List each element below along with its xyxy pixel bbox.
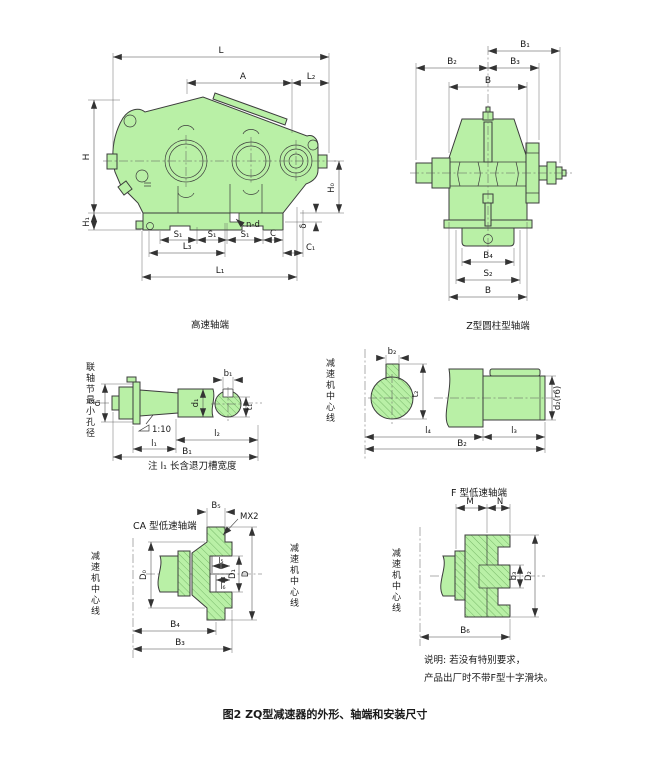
dim-l3-label: l₃ xyxy=(511,426,517,436)
dim-D2-label: D₂ xyxy=(524,571,534,581)
dim-l4-label: l₄ xyxy=(425,426,431,436)
z-key xyxy=(490,369,540,376)
dim-l5-label: l₅ xyxy=(218,556,223,565)
f-collar xyxy=(455,551,465,600)
high-speed-shaft-view: 高速轴端 1:10 dₗ d₁ b₁ t₁ l₂ l₁ B₁ 注 l₁ 长含退刀… xyxy=(93,319,262,472)
dim-b2-label: b₂ xyxy=(388,347,397,357)
z-shaft-view: Z型圆柱型轴端 b₂ t₂ d₂(r6) l₄ l₃ B₂ xyxy=(365,320,563,461)
section-centerlines xyxy=(211,387,245,421)
dim-H-label: H xyxy=(82,154,92,161)
dim-B2-label: B₂ xyxy=(447,57,457,67)
dim-C1-label: C₁ xyxy=(306,243,315,253)
dim-B3ca-label: B₃ xyxy=(175,638,185,648)
ca-shaft-view: CA 型低速轴端 B₅ MX2 D₀ l₅ l₆ D₁ D B₄ B₃ xyxy=(133,501,262,658)
dim-d2-label: d₂(r6) xyxy=(553,386,563,410)
ca-washer xyxy=(178,551,190,596)
thread-label: MX2 xyxy=(240,512,259,522)
dim-d1-label: d₁ xyxy=(191,399,201,408)
dim-dL-label: dₗ xyxy=(93,400,103,407)
dim-b3-label: b₃ xyxy=(509,572,519,581)
taper-section xyxy=(140,390,178,416)
f-coupling-body xyxy=(465,535,510,617)
figure-caption: 图2 ZQ型减速器的外形、轴端和安装尺寸 xyxy=(223,707,428,721)
ca-title: CA 型低速轴端 xyxy=(133,520,197,532)
dim-B6-label: B₆ xyxy=(460,626,470,636)
dim-l2-label: l₂ xyxy=(214,429,220,439)
dim-D0-label: D₀ xyxy=(139,569,149,580)
dim-D-label: D xyxy=(241,570,251,577)
shaft-tip xyxy=(112,396,119,410)
end-view: B₁ B₂ B₃ B B₄ S₂ B xyxy=(410,40,572,301)
dim-D1-label: D₁ xyxy=(228,569,238,579)
dim-C-label: C xyxy=(270,229,276,239)
output-shaft-stub xyxy=(318,155,327,168)
f-shaft-stub xyxy=(441,556,455,596)
side-view: L A L₂ H H₁ H₀ δ S₁ S₁ S₁ C n-d L₃ C₁ L₁ xyxy=(82,46,344,281)
dim-L3-label: L₃ xyxy=(183,242,192,252)
dim-H1-label: H₁ xyxy=(82,217,92,227)
dim-Bbot-label: B xyxy=(485,286,491,296)
dim-L1-label: L₁ xyxy=(216,266,225,276)
dim-B1-label: B₁ xyxy=(520,40,530,50)
dim-B2z-label: B₂ xyxy=(457,439,467,449)
shaft-nut xyxy=(119,387,133,419)
taper-symbol xyxy=(139,415,153,431)
dim-Btop-label: B xyxy=(485,76,491,86)
dim-B4ca-label: B₄ xyxy=(170,620,180,630)
ca-coupling-body xyxy=(192,527,232,620)
dim-l6-label: l₆ xyxy=(220,582,225,591)
dim-S1c-label: S₁ xyxy=(241,230,250,240)
high-speed-title: 高速轴端 xyxy=(191,319,230,331)
drain-plug xyxy=(136,221,143,229)
dim-S1b-label: S₁ xyxy=(208,230,217,240)
z-title: Z型圆柱型轴端 xyxy=(466,320,530,332)
dim-M-label: M xyxy=(466,497,473,507)
dim-S2-label: S₂ xyxy=(483,269,493,279)
dim-N-label: N xyxy=(497,497,503,507)
housing-body xyxy=(113,97,318,213)
dim-delta-label: δ xyxy=(299,223,309,228)
note-line1: 说明: 若没有特别要求， xyxy=(424,654,525,666)
dim-b1-label: b₁ xyxy=(224,369,233,379)
coupling-bore-label: 联轴节最小孔径 xyxy=(84,362,93,439)
dim-nd-label: n-d xyxy=(246,220,260,230)
dim-L2-label: L₂ xyxy=(307,72,316,82)
z-centerline-label: 减速机中心线 xyxy=(324,358,333,424)
dim-S1a-label: S₁ xyxy=(174,230,183,240)
dim-B5-label: B₅ xyxy=(211,501,220,511)
taper-label: 1:10 xyxy=(152,425,171,435)
ca-centerline-label-left: 减速机中心线 xyxy=(89,551,98,617)
f-shaft-view: F 型低速轴端 M N b₃ D₂ B₆ xyxy=(420,487,545,646)
dim-H0-label: H₀ xyxy=(327,183,337,193)
ca-centerline-label-right: 减速机中心线 xyxy=(288,543,297,609)
drawing-page: L A L₂ H H₁ H₀ δ S₁ S₁ S₁ C n-d L₃ C₁ L₁ xyxy=(0,0,650,760)
dim-L-label: L xyxy=(218,46,223,56)
hs-note: 注 l₁ 长含退刀槽宽度 xyxy=(148,460,237,472)
input-shaft-stub xyxy=(107,154,117,169)
dim-B3-label: B₃ xyxy=(510,57,520,67)
dim-B1hs-label: B₁ xyxy=(182,447,192,457)
base-flange xyxy=(143,213,283,230)
dim-t1-label: t₁ xyxy=(245,404,255,411)
f-centerline-label: 减速机中心线 xyxy=(390,548,399,614)
dim-l1-label: l₁ xyxy=(151,439,157,449)
ca-shaft-stub xyxy=(158,556,178,592)
dim-B4-label: B₄ xyxy=(483,251,493,261)
dim-t2-label: t₂ xyxy=(411,391,421,398)
dim-A-label: A xyxy=(240,72,247,82)
note-line2: 产品出厂时不带F型十字滑块。 xyxy=(424,672,553,684)
washer xyxy=(133,382,140,424)
lock-tab xyxy=(127,377,136,382)
